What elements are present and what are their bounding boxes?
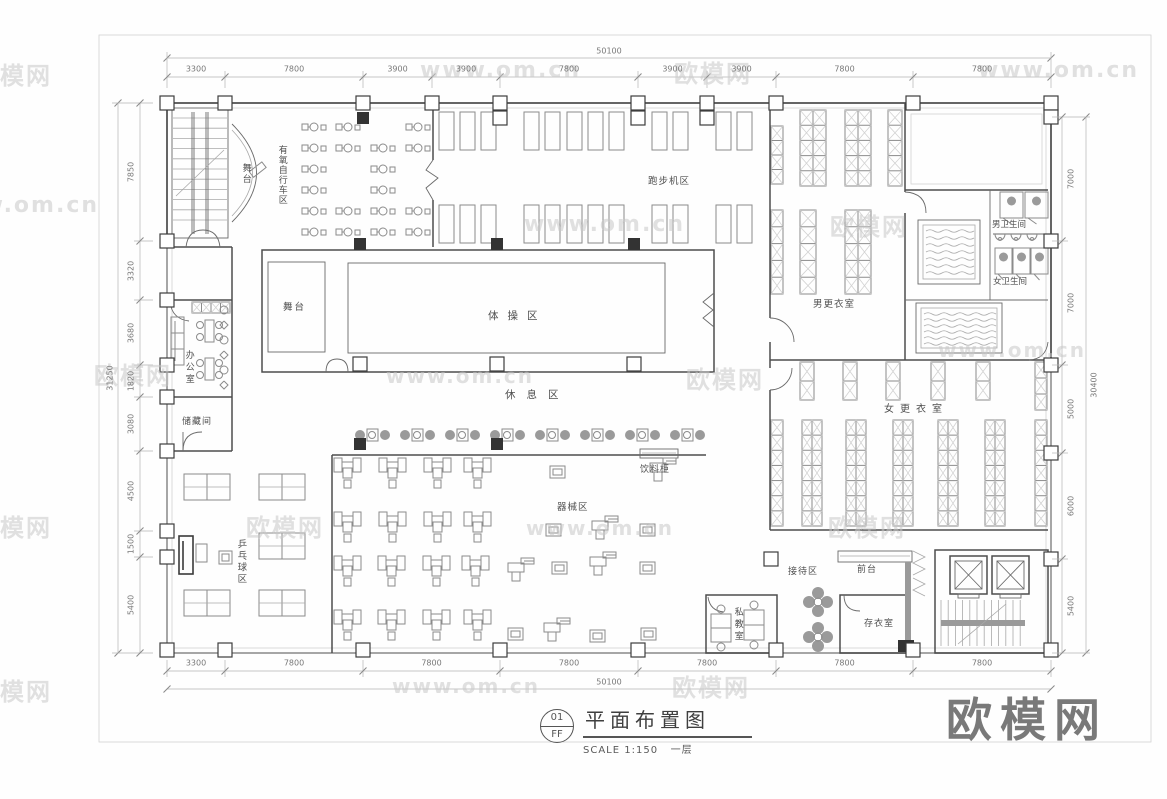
room-label-office: 办公室 [183,350,194,386]
dim-bottom-seg: 7800 [972,659,992,668]
stair-top-left [172,108,228,238]
dim-top-total: 50100 [596,47,621,56]
title-block-main: 平面布置图 SCALE 1:150 一层 [583,704,752,756]
floorplan-sheet: 欧模网www.om.cn欧模网www.om.cnwww.om.cnwww.om.… [0,0,1167,799]
drawing-title: 平面布置图 [583,704,752,738]
dim-left-seg: 3080 [127,414,136,434]
dim-bottom-seg: 7800 [284,659,304,668]
dim-right-seg: 5400 [1067,596,1076,616]
dim-top-seg: 7800 [284,65,304,74]
dim-top-seg: 3900 [387,65,407,74]
dim-left-seg: 7850 [127,162,136,182]
room-label-mens-wc: 男卫生间 [992,220,1026,230]
dim-right-total: 30400 [1090,372,1099,397]
drawing-number: 01 [541,710,573,727]
columns [160,96,1058,657]
scale-text: SCALE 1:150 [583,745,658,756]
room-label-front-desk: 前台 [857,565,877,576]
dim-top-seg: 7800 [972,65,992,74]
equipment-zone [332,449,706,653]
watermark-text: www.om.cn [0,193,99,218]
drawing-scale-note: SCALE 1:150 一层 [583,741,752,756]
dim-bottom-seg: 7800 [697,659,717,668]
room-label-aerobic-bike-area: 有氧自行车区 [276,145,287,205]
dim-bottom-seg: 7800 [834,659,854,668]
drawing-number-bubble: 01 FF [540,709,574,743]
dim-right-seg: 7000 [1067,169,1076,189]
room-label-drink-cabinet: 饮料柜 [640,465,670,476]
watermark-text: 欧模网 [828,508,906,543]
room-label-gymnastics-area: 体操区 [488,310,547,323]
room-label-treadmill-area: 跑步机区 [648,176,690,187]
room-label-equipment-area: 器械区 [557,502,589,513]
dim-top-seg: 3900 [731,65,751,74]
watermark-text: www.om.cn [386,364,534,388]
room-label-private-coach-room: 私教室 [732,607,743,643]
sheet-border [99,35,1151,742]
room-label-cloakroom: 存衣室 [864,619,894,630]
dim-left-seg: 1500 [127,534,136,554]
dim-top-seg: 7800 [834,65,854,74]
watermark-text: www.om.cn [420,58,581,83]
dim-top-seg: 3900 [662,65,682,74]
watermark-text: 欧模网 [0,672,52,707]
dim-bottom-total: 50100 [596,678,621,687]
dim-left-seg: 3680 [127,322,136,342]
watermark-text: 欧模网 [830,207,908,242]
dim-bottom-seg: 7800 [421,659,441,668]
watermark-text: www.om.cn [938,338,1086,362]
dim-left-seg: 1820 [127,371,136,391]
brand-watermark-large: 欧模网 [946,684,1108,750]
watermark-text: www.om.cn [526,516,674,540]
room-label-reception-area: 接待区 [788,567,818,578]
room-label-womens-wc: 女卫生间 [993,277,1027,287]
dim-left-total: 31250 [106,365,115,390]
sheet-code: FF [541,727,573,743]
dim-top-seg: 7800 [559,65,579,74]
room-label-mens-locker: 男更衣室 [813,299,855,310]
watermark-text: 欧模网 [672,668,750,703]
floor-text: 一层 [671,745,693,756]
rest-benches [355,429,705,441]
dim-top-seg: 3300 [186,65,206,74]
title-block: 01 FF 平面布置图 SCALE 1:150 一层 [540,704,752,756]
dim-bottom-seg: 3300 [186,659,206,668]
room-label-pingpong-area: 乒乓球区 [235,539,246,585]
dim-left-seg: 5400 [127,595,136,615]
room-label-womens-locker: 女更衣室 [884,404,948,416]
watermark-text: 欧模网 [686,360,764,395]
watermark-text: 欧模网 [0,508,52,543]
watermark-text: www.om.cn [392,674,540,698]
dim-right-seg: 7000 [1067,293,1076,313]
room-label-storage: 储藏间 [182,417,212,428]
locker-strips [771,110,1047,526]
dim-bottom-seg: 7800 [559,659,579,668]
bathroom-fixtures [916,192,1048,360]
watermark-text: 欧模网 [0,56,52,91]
room-label-rest-area: 休息区 [505,389,570,402]
watermark-text: www.om.cn [978,58,1139,83]
dim-right-seg: 5000 [1067,399,1076,419]
outer-walls [167,103,1051,653]
dim-right-seg: 6000 [1067,496,1076,516]
floor-plan-canvas [0,0,1167,799]
spin-bike-icons [302,123,430,236]
elevator-stair-core [935,550,1048,653]
dim-left-seg: 4500 [127,481,136,501]
room-label-stage-main: 舞台 [283,302,306,313]
room-label-stage-upper: 舞台 [240,163,251,185]
dim-left-seg: 3320 [127,260,136,280]
dim-top-seg: 3900 [456,65,476,74]
watermark-text: 欧模网 [246,508,324,543]
watermark-text: www.om.cn [524,212,685,237]
